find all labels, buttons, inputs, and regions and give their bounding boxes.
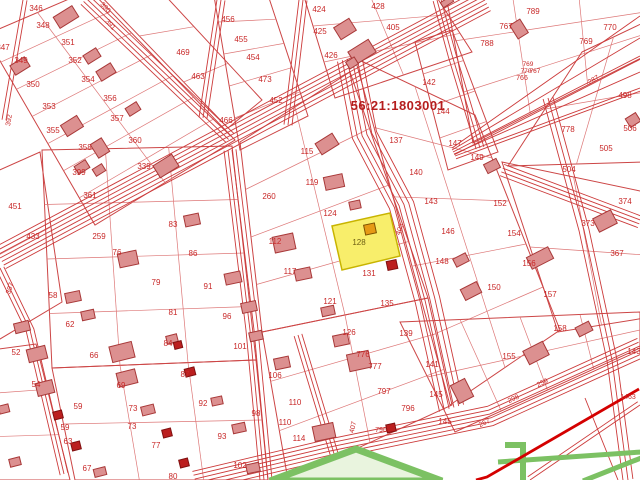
parcel-number: 156 [522, 259, 536, 268]
parcel-number: 353 [42, 102, 56, 111]
parcel-number: 463 [191, 72, 205, 81]
parcel-number: 473 [258, 75, 272, 84]
building [575, 321, 593, 337]
parcel-number: 69 [117, 381, 126, 390]
cadastral-quarter-number: 56:21:1803001 [351, 98, 446, 113]
parcel-number: 796 [375, 427, 387, 434]
parcel-number: 154 [507, 229, 521, 238]
parcel-number: 506 [623, 124, 637, 133]
parcel-number: 119 [306, 178, 319, 187]
parcel-number: 776 [356, 350, 370, 359]
parcel-number: 147 [448, 139, 462, 148]
building [386, 423, 396, 433]
road-street-397 [0, 267, 68, 475]
cadastral-map-view[interactable]: 3463483513473493523543503563533573553603… [0, 0, 640, 480]
building [81, 309, 96, 321]
building [141, 404, 156, 416]
building [92, 164, 106, 177]
parcel-number: 769 [579, 37, 593, 46]
parcel-number: 374 [618, 197, 632, 206]
building [241, 301, 258, 314]
building [593, 210, 618, 232]
parcel-number: 148 [435, 257, 449, 266]
parcel-number: 357 [110, 114, 124, 123]
parcel-number: 469 [176, 48, 190, 57]
parcel-number: 454 [246, 53, 260, 62]
parcel-number: 131 [362, 269, 376, 278]
parcel-number: 347 [0, 43, 10, 52]
parcel-number: 79 [152, 278, 161, 287]
building [90, 138, 110, 158]
parcel-number: 504 [562, 165, 576, 174]
building [162, 428, 173, 438]
parcel-number: 114 [293, 434, 306, 443]
parcel-number: 360 [128, 136, 142, 145]
parcel-number: 73 [128, 422, 137, 431]
road-street-right-top [433, 0, 484, 149]
building [65, 291, 82, 304]
building [249, 330, 264, 342]
parcel-number: 466 [219, 116, 233, 125]
parcel-number: 358 [78, 143, 92, 152]
parcel-number: 102 [233, 461, 247, 470]
selected-parcel-number: 128 [352, 238, 366, 247]
parcel-number: 259 [92, 232, 106, 241]
parcel-number: 352 [68, 56, 82, 65]
parcel-number: 139 [399, 329, 413, 338]
parcel-number: 339 [137, 162, 151, 171]
parcel-number: 87 [181, 370, 190, 379]
parcel-number: 797 [377, 387, 391, 396]
parcel-number: 145 [438, 417, 452, 426]
building [232, 422, 247, 434]
parcel-number: 428 [371, 2, 385, 11]
parcel-number: 146 [441, 227, 455, 236]
parcel-number: 117 [284, 267, 297, 276]
parcel-number: 452 [269, 96, 283, 105]
parcel-number: 392 [5, 114, 14, 127]
parcel-number: 770 [603, 23, 617, 32]
parcel-number: 451 [8, 202, 22, 211]
parcel-number: 348 [36, 21, 50, 30]
parcel-number: 766 [516, 75, 528, 82]
parcel-number: 260 [262, 192, 276, 201]
parcel-number: 424 [312, 5, 326, 14]
building [323, 174, 344, 191]
parcel-number: 142 [422, 78, 436, 87]
parcel-number: 425 [313, 27, 327, 36]
parcel-number: 83 [169, 220, 178, 229]
parcel-number: 150 [487, 283, 501, 292]
building [294, 267, 312, 281]
parcel-number: 349 [14, 56, 28, 65]
parcel-number: 73 [129, 404, 138, 413]
parcel-number: 63 [64, 437, 73, 446]
parcel-number: 777 [368, 362, 382, 371]
parcel-number: 66 [90, 351, 99, 360]
parcel-number: 106 [268, 371, 282, 380]
parcel-number: 397 [5, 282, 15, 295]
parcel-number: 426 [324, 51, 338, 60]
parcel-number: 59 [61, 423, 70, 432]
parcel-number: 373 [581, 219, 595, 228]
building [334, 18, 357, 39]
parcel-number: 433 [26, 232, 40, 241]
building [523, 341, 549, 364]
parcel-number: 91 [204, 282, 213, 291]
parcel-number: 354 [81, 75, 95, 84]
parcel-number: 52 [12, 348, 21, 357]
parcel-number: 59 [74, 402, 83, 411]
parcel-number: 356 [103, 94, 117, 103]
parcel-number: 778 [561, 125, 575, 134]
parcel-number: 110 [279, 418, 292, 427]
parcel-number: 84 [164, 339, 173, 348]
green-area [270, 449, 442, 480]
parcel-number: 145 [429, 390, 443, 399]
road-street-287-fan-4 [454, 72, 640, 154]
parcel-number: 149 [470, 153, 484, 162]
parcel-number: 143 [627, 347, 640, 356]
parcel-number: 76 [113, 248, 122, 257]
vegetation-layer [270, 445, 640, 480]
building [53, 6, 79, 29]
parcel-number: 155 [502, 352, 516, 361]
building [453, 253, 470, 267]
parcel-number: 58 [49, 291, 58, 300]
building [60, 115, 83, 136]
parcel-number: 110 [289, 398, 302, 407]
building [9, 457, 22, 467]
building [349, 200, 361, 210]
building [83, 48, 101, 64]
parcel-number: 407 [349, 421, 358, 434]
parcel-number: 80 [169, 472, 178, 480]
parcel-number: 121 [323, 297, 337, 306]
parcel-number: 98 [252, 409, 261, 418]
parcel-number: 399 [72, 168, 86, 177]
parcel-number: 390 [98, 1, 111, 14]
parcel-number: 54 [32, 380, 41, 389]
building [211, 396, 223, 406]
road-street-right-vertical [543, 97, 633, 480]
parcel-number: 767 [530, 68, 541, 75]
parcel-number: 158 [553, 324, 567, 333]
building [364, 223, 377, 235]
parcel-number: 769 [523, 61, 534, 68]
parcel-number: 143 [424, 197, 438, 206]
building [321, 305, 336, 317]
building [96, 63, 116, 81]
parcel-number: 788 [480, 39, 494, 48]
parcel-number: 93 [218, 432, 227, 441]
parcel-number: 355 [46, 126, 60, 135]
building [173, 341, 182, 350]
building [109, 341, 135, 362]
parcel-number: 367 [610, 249, 624, 258]
parcel-number: 62 [66, 320, 75, 329]
building [179, 458, 190, 468]
building [0, 404, 10, 414]
parcel-number: 124 [323, 209, 337, 218]
parcel-number: 141 [425, 360, 439, 369]
road-street-287-fan-2 [452, 38, 640, 150]
parcel-number: 350 [26, 80, 40, 89]
parcel-number: 405 [386, 23, 400, 32]
building [483, 158, 500, 173]
parcel-number: 505 [599, 144, 613, 153]
parcel-number: 455 [234, 35, 248, 44]
parcel-number: 140 [409, 168, 423, 177]
parcel-number: 67 [83, 464, 92, 473]
building [53, 410, 64, 420]
building [14, 320, 31, 333]
parcel-number: 287 [587, 74, 601, 86]
parcel-number: 137 [389, 136, 403, 145]
parcel-number: 346 [29, 4, 43, 13]
parcel-number: 789 [526, 7, 540, 16]
parcel-number: 92 [199, 399, 208, 408]
building [93, 467, 107, 478]
cadastral-map-canvas[interactable]: 3463483513473493523543503563533573553603… [0, 0, 640, 480]
parcel-number: 152 [493, 199, 507, 208]
parcel-number: 498 [618, 91, 632, 100]
building [26, 345, 48, 362]
parcel-number: 361 [83, 191, 97, 200]
parcel-number: 101 [233, 342, 247, 351]
parcel-number: 86 [189, 249, 198, 258]
cadastral-quarter-label: 56:21:1803001 [351, 98, 446, 113]
parcel-number: 135 [380, 299, 394, 308]
parcel-number: 1463 [620, 394, 636, 401]
building [274, 356, 291, 370]
parcel-number: 157 [543, 290, 557, 299]
parcel-number: 96 [223, 312, 232, 321]
road-street-287-fan-1 [452, 16, 640, 148]
parcel-number: 81 [169, 308, 178, 317]
building [125, 102, 141, 117]
parcel-number: 126 [342, 328, 356, 337]
parcel-number: 767 [499, 22, 513, 31]
building [315, 133, 339, 155]
parcel-number: 115 [301, 147, 314, 156]
parcel-number: 351 [61, 38, 75, 47]
parcel-number: 456 [221, 15, 235, 24]
building [224, 271, 242, 285]
parcel-number: 796 [401, 404, 415, 413]
parcel-number: 77 [152, 441, 161, 450]
parcel-number: 112 [269, 237, 282, 246]
building [184, 213, 201, 227]
building [386, 260, 398, 271]
parcel-number: 403 [395, 223, 405, 236]
